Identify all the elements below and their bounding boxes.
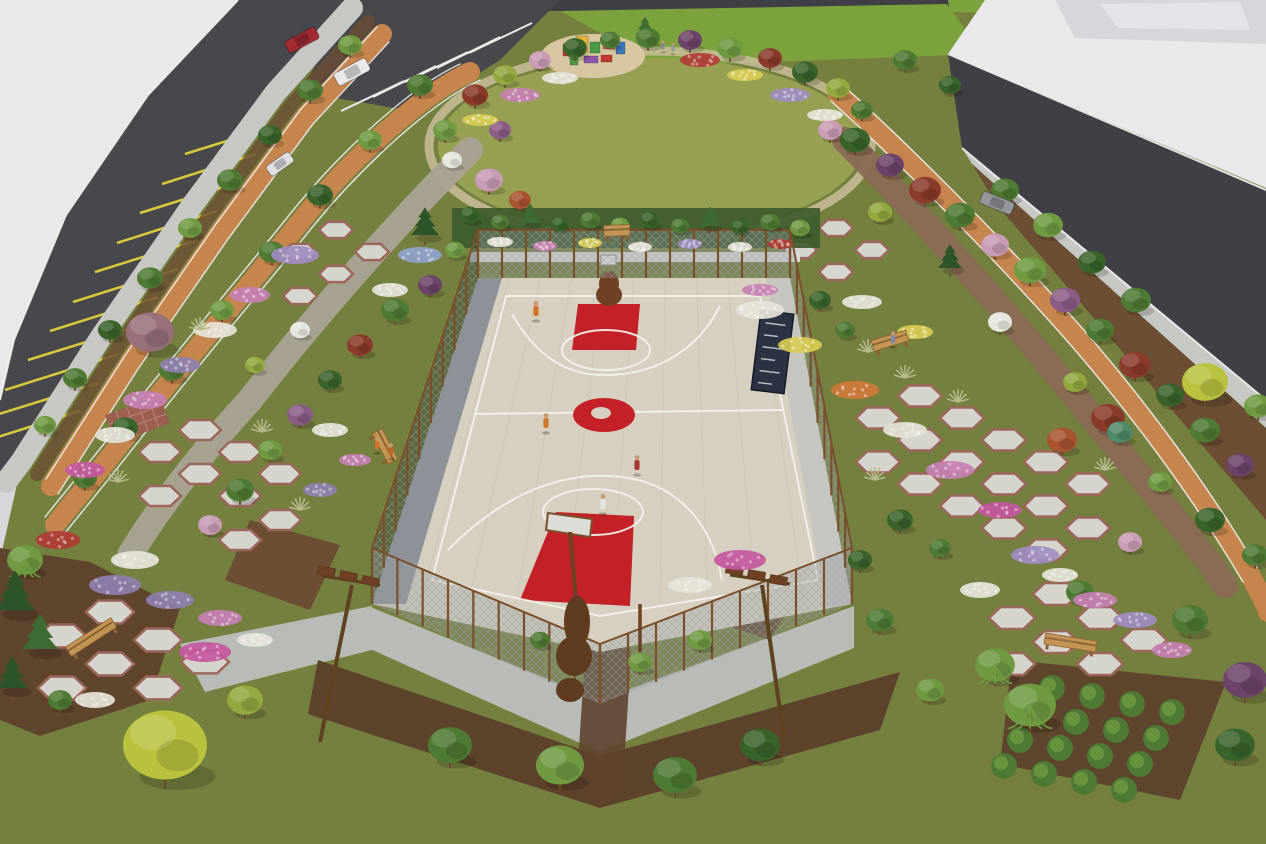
flower-bed: [398, 247, 442, 263]
flower-dot: [811, 341, 814, 344]
flower-dot: [82, 468, 85, 471]
person-head: [544, 413, 549, 418]
flower-dot: [783, 91, 786, 94]
paver-hex: [139, 442, 181, 462]
flower-dot: [95, 702, 98, 705]
flower-dot: [1061, 570, 1064, 573]
flower-dot: [995, 503, 998, 506]
flower-dot: [956, 466, 959, 469]
flower-dot: [978, 582, 981, 585]
canopy-shade: [768, 56, 780, 65]
flower-dot: [430, 249, 433, 252]
flower-dot: [256, 633, 259, 636]
flower-dot: [427, 253, 430, 256]
flower-dot: [1135, 613, 1138, 616]
flower-dot: [594, 240, 597, 243]
flower-dot: [766, 290, 769, 293]
flower-dot: [95, 579, 98, 582]
shrub-highlight: [1114, 780, 1128, 794]
flower-dot: [1073, 572, 1076, 575]
shrub-highlight: [1066, 712, 1080, 726]
person-shadow: [388, 458, 394, 461]
bench-back: [604, 225, 630, 230]
playground: [541, 34, 645, 78]
flower-bed: [680, 53, 720, 67]
flower-dot: [554, 76, 557, 79]
flower-dot: [736, 558, 739, 561]
flower-dot: [911, 423, 914, 426]
canopy-shade: [443, 128, 455, 137]
canopy-shade: [73, 376, 85, 385]
shrub-highlight: [1106, 720, 1120, 734]
flower-dot: [889, 433, 892, 436]
flower-dot: [118, 428, 121, 431]
flower-bed: [842, 295, 882, 309]
flower-dot: [188, 360, 191, 363]
flower-dot: [1019, 558, 1022, 561]
flower-dot: [1031, 552, 1034, 555]
flower-dot: [816, 116, 819, 119]
flower-dot: [1014, 508, 1017, 511]
flower-dot: [838, 112, 841, 115]
paver-hex: [940, 408, 984, 429]
flower-dot: [180, 363, 183, 366]
flower-dot: [125, 562, 128, 565]
canopy-shade: [698, 638, 710, 647]
flower-dot: [1170, 649, 1173, 652]
flower-dot: [258, 642, 261, 645]
bench-leg: [625, 236, 628, 241]
flower-dot: [1176, 653, 1179, 656]
flower-dot: [987, 510, 990, 513]
flower-dot: [207, 331, 210, 334]
person-head: [662, 40, 665, 43]
flower-dot: [244, 290, 247, 293]
tree-shadow: [524, 222, 542, 228]
person-body: [634, 460, 639, 470]
flower-dot: [267, 641, 270, 644]
flower-bed: [160, 357, 200, 373]
flower-dot: [296, 255, 299, 258]
paver-hex: [855, 242, 889, 258]
flower-dot: [323, 483, 326, 486]
person-body: [375, 441, 379, 449]
bench-leg: [606, 236, 609, 241]
flower-dot: [430, 257, 433, 260]
flower-dot: [259, 292, 262, 295]
flower-bed: [1152, 642, 1192, 658]
canopy-shade: [208, 523, 220, 532]
flower-dot: [799, 92, 802, 95]
canopy-shade: [860, 109, 871, 117]
flower-dot: [282, 254, 285, 257]
flower-mass: [714, 550, 766, 570]
flower-dot: [540, 245, 543, 248]
person-body: [389, 447, 393, 455]
flower-dot: [634, 244, 637, 247]
flower-dot: [1128, 616, 1131, 619]
flower-dot: [905, 432, 908, 435]
flower-dot: [745, 74, 748, 77]
flower-bed: [111, 551, 159, 569]
flower-dot: [755, 315, 758, 318]
flower-dot: [909, 331, 912, 334]
flower-dot: [684, 588, 687, 591]
flower-dot: [752, 288, 755, 291]
flower-dot: [323, 432, 326, 435]
flower-dot: [706, 64, 709, 67]
flower-dot: [1168, 642, 1171, 645]
canopy-shade: [948, 84, 959, 92]
flower-dot: [417, 257, 420, 260]
canopy-shade: [268, 448, 280, 457]
flower-dot: [88, 467, 91, 470]
flower-bed: [668, 577, 712, 593]
flower-dot: [1084, 604, 1087, 607]
flower-dot: [166, 606, 169, 609]
shrub-highlight: [1010, 730, 1024, 744]
flower-dot: [978, 589, 981, 592]
flower-dot: [923, 335, 926, 338]
canopy-shade: [998, 320, 1010, 329]
paver-hex: [898, 386, 942, 407]
flower-dot: [402, 256, 405, 259]
canopy-shade: [538, 59, 549, 67]
flower-dot: [579, 241, 582, 244]
flower-bed: [714, 550, 766, 570]
flower-mass: [271, 246, 319, 264]
flower-dot: [1018, 552, 1021, 555]
flower-bed: [123, 391, 167, 409]
paver-hex: [179, 464, 221, 484]
canopy-shade: [1158, 480, 1170, 489]
flower-dot: [738, 74, 741, 77]
person-shadow: [661, 51, 666, 53]
flower-dot: [749, 311, 752, 314]
flower-dot: [380, 293, 383, 296]
canopy-shade: [1062, 298, 1077, 309]
flower-dot: [832, 115, 835, 118]
flower-dot: [106, 591, 109, 594]
flower-dot: [643, 248, 646, 251]
flower-dot: [783, 95, 786, 98]
flower-dot: [752, 70, 755, 73]
flower-dot: [184, 654, 187, 657]
paver-hex: [319, 266, 353, 282]
canopy-shade: [237, 488, 251, 499]
shrub-highlight: [1162, 702, 1176, 716]
flower-dot: [1144, 617, 1147, 620]
flower-dot: [726, 562, 729, 565]
canopy-shade: [818, 299, 829, 307]
tree-shadow: [704, 225, 722, 231]
flower-dot: [260, 637, 263, 640]
flower-dot: [151, 394, 154, 397]
flower-dot: [762, 306, 765, 309]
flower-dot: [1140, 613, 1143, 616]
paver-hex: [1077, 653, 1123, 675]
flower-dot: [116, 436, 119, 439]
flower-dot: [225, 622, 228, 625]
flower-bed: [339, 454, 371, 466]
person-head: [635, 455, 640, 460]
flower-bed: [36, 531, 80, 549]
flower-dot: [320, 432, 323, 435]
flower-dot: [407, 252, 410, 255]
flower-dot: [391, 284, 394, 287]
canopy-shade: [157, 740, 199, 772]
shrub-highlight: [1050, 738, 1064, 752]
person-body: [891, 335, 895, 343]
flower-dot: [279, 249, 282, 252]
flower-dot: [330, 430, 333, 433]
flower-mass: [312, 423, 348, 437]
flower-dot: [1163, 646, 1166, 649]
canopy-shade: [188, 226, 200, 235]
flower-dot: [92, 703, 95, 706]
canopy-shade: [852, 138, 867, 149]
flower-mass: [123, 391, 167, 409]
flower-dot: [185, 364, 188, 367]
paver-hex: [134, 677, 182, 700]
flower-dot: [1100, 597, 1103, 600]
flower-dot: [757, 556, 760, 559]
flower-dot: [477, 114, 480, 117]
flower-dot: [130, 402, 133, 405]
paver-hex: [819, 264, 853, 280]
flower-dot: [592, 237, 595, 240]
flower-bed: [303, 483, 337, 497]
flower-dot: [425, 249, 428, 252]
flower-dot: [1109, 601, 1112, 604]
flower-dot: [123, 581, 126, 584]
flower-dot: [804, 349, 807, 352]
flower-dot: [308, 249, 311, 252]
flower-dot: [218, 333, 221, 336]
center-circle-hole: [591, 407, 611, 419]
flower-dot: [343, 457, 346, 460]
flower-dot: [81, 474, 84, 477]
flower-dot: [741, 71, 744, 74]
flower-dot: [852, 392, 855, 395]
flower-dot: [196, 651, 199, 654]
flower-dot: [639, 241, 642, 244]
flower-bed: [65, 462, 105, 478]
flower-dot: [506, 238, 509, 241]
flower-dot: [80, 697, 83, 700]
flower-dot: [994, 589, 997, 592]
flower-dot: [491, 238, 494, 241]
flower-dot: [942, 475, 945, 478]
canopy-shade: [297, 413, 310, 423]
flower-dot: [676, 581, 679, 584]
flower-dot: [953, 473, 956, 476]
flower-dot: [550, 79, 553, 82]
flower-mass: [883, 422, 927, 438]
flower-dot: [208, 613, 211, 616]
flower-dot: [571, 75, 574, 78]
flower-dot: [136, 392, 139, 395]
flower-dot: [161, 594, 164, 597]
flower-dot: [1005, 510, 1008, 513]
flower-dot: [1052, 573, 1055, 576]
flower-dot: [752, 304, 755, 307]
canopy-shade: [558, 223, 567, 230]
canopy-shade: [1097, 328, 1111, 339]
flower-dot: [133, 398, 136, 401]
flower-dot: [243, 640, 246, 643]
canopy-shade: [220, 308, 232, 317]
tree-shadow: [29, 648, 61, 660]
flower-dot: [494, 243, 497, 246]
flower-dot: [1041, 548, 1044, 551]
flower-dot: [818, 109, 821, 112]
flower-dot: [213, 616, 216, 619]
flower-bed: [831, 381, 879, 399]
shrub-highlight: [994, 756, 1008, 770]
flower-dot: [1079, 598, 1082, 601]
canopy-shade: [802, 70, 815, 80]
flower-dot: [211, 620, 214, 623]
flower-dot: [352, 455, 355, 458]
paver-hex: [219, 442, 261, 462]
paver-hex: [856, 452, 900, 473]
flower-dot: [258, 288, 261, 291]
flower-dot: [1137, 623, 1140, 626]
person-body: [661, 43, 664, 49]
canopy-shade: [43, 424, 54, 432]
flower-dot: [766, 311, 769, 314]
flower-dot: [499, 238, 502, 241]
flower-dot: [798, 337, 801, 340]
flower-mass: [1011, 546, 1059, 564]
flower-dot: [836, 391, 839, 394]
shrub-highlight: [1074, 772, 1088, 786]
canopy-shade: [798, 227, 808, 235]
flower-bed: [89, 575, 141, 595]
flower-bed: [728, 242, 752, 252]
flower-bed: [978, 502, 1022, 518]
flower-dot: [1048, 557, 1051, 560]
flower-dot: [786, 242, 789, 245]
flower-dot: [147, 398, 150, 401]
flower-bed: [960, 582, 1000, 598]
flower-dot: [935, 469, 938, 472]
shrub-highlight: [1090, 746, 1104, 760]
flower-dot: [234, 291, 237, 294]
flower-bed: [230, 287, 270, 303]
person-shadow: [532, 319, 540, 322]
flower-dot: [868, 305, 871, 308]
person-shadow: [890, 346, 896, 349]
canopy-shade: [298, 329, 308, 337]
flower-dot: [551, 76, 554, 79]
canopy-shade: [738, 226, 747, 233]
flower-dot: [129, 562, 132, 565]
canopy-shade: [472, 93, 485, 103]
flower-dot: [133, 557, 136, 560]
flower-dot: [320, 424, 323, 427]
canopy-shade: [147, 276, 160, 286]
flower-dot: [777, 240, 780, 243]
flower-dot: [753, 73, 756, 76]
flower-dot: [118, 432, 121, 435]
flower-dot: [165, 598, 168, 601]
flower-dot: [524, 91, 527, 94]
paver-hex: [355, 244, 389, 260]
flower-dot: [214, 328, 217, 331]
flower-dot: [396, 288, 399, 291]
canopy-shade: [1133, 298, 1148, 309]
shrub-highlight: [1082, 686, 1096, 700]
paver-hex: [989, 607, 1035, 629]
flower-dot: [81, 703, 84, 706]
flower-dot: [771, 287, 774, 290]
flower-dot: [698, 56, 701, 59]
flower-dot: [120, 587, 123, 590]
flower-dot: [517, 95, 520, 98]
flower-dot: [692, 240, 695, 243]
canopy-shade: [1252, 553, 1265, 563]
flower-dot: [306, 488, 309, 491]
flower-dot: [315, 485, 318, 488]
flower-mass: [198, 610, 242, 626]
flower-dot: [1053, 568, 1056, 571]
paver-hex: [982, 518, 1026, 539]
flower-dot: [694, 245, 697, 248]
flower-dot: [98, 585, 101, 588]
flower-dot: [743, 77, 746, 80]
flower-bed: [75, 692, 115, 708]
paver-hex: [86, 653, 134, 676]
flower-dot: [746, 247, 749, 250]
canopy-shade: [646, 36, 658, 45]
flower-dot: [1167, 651, 1170, 654]
flower-dot: [164, 592, 167, 595]
flower-dot: [630, 247, 633, 250]
person-head: [891, 331, 895, 335]
canopy-shade: [887, 163, 901, 174]
flower-dot: [101, 697, 104, 700]
flower-bed: [95, 427, 135, 443]
canopy-shade: [368, 138, 380, 147]
flower-dot: [871, 302, 874, 305]
paver-hex: [982, 474, 1026, 495]
canopy-shade: [486, 178, 500, 189]
flower-dot: [751, 285, 754, 288]
flower-dot: [252, 639, 255, 642]
canopy-shade: [392, 308, 406, 319]
flower-dot: [148, 555, 151, 558]
bench-seat: [604, 230, 630, 237]
flower-dot: [861, 388, 864, 391]
flower-dot: [698, 241, 701, 244]
flower-dot: [567, 78, 570, 81]
flower-dot: [140, 565, 143, 568]
canopy-shade: [555, 762, 579, 780]
flower-dot: [910, 335, 913, 338]
flower-dot: [901, 427, 904, 430]
flower-dot: [466, 120, 469, 123]
flower-dot: [69, 466, 72, 469]
flower-dot: [748, 69, 751, 72]
flower-dot: [758, 290, 761, 293]
flower-bed: [1073, 592, 1117, 608]
flower-dot: [698, 584, 701, 587]
flower-dot: [216, 645, 219, 648]
flower-dot: [911, 428, 914, 431]
flower-dot: [400, 291, 403, 294]
